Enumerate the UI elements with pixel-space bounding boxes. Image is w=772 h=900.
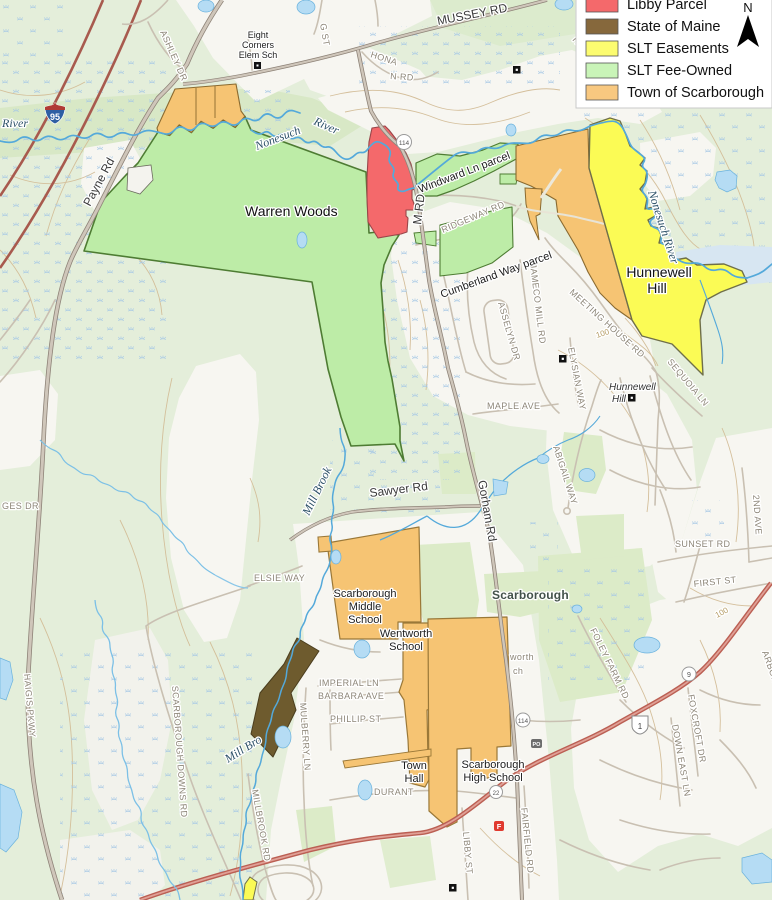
svg-text:River: River <box>1 116 28 130</box>
svg-text:Libby Parcel: Libby Parcel <box>627 0 707 13</box>
svg-text:Scarborough: Scarborough <box>492 588 569 602</box>
svg-text:Town: Town <box>401 760 427 772</box>
svg-text:9: 9 <box>687 672 691 679</box>
svg-text:MAPLE AVE: MAPLE AVE <box>487 401 540 411</box>
svg-text:Elem Sch: Elem Sch <box>239 50 278 60</box>
svg-text:Hall: Hall <box>405 773 424 785</box>
svg-text:Middle: Middle <box>349 601 381 613</box>
svg-text:IMPERIAL LN: IMPERIAL LN <box>319 678 379 688</box>
svg-text:Hunnewell: Hunnewell <box>626 264 691 280</box>
svg-text:Town of Scarborough: Town of Scarborough <box>627 85 764 101</box>
svg-text:Wentworth: Wentworth <box>380 628 432 640</box>
svg-text:Corners: Corners <box>242 40 275 50</box>
svg-text:95: 95 <box>50 112 60 122</box>
svg-text:114: 114 <box>399 140 410 147</box>
svg-text:ch: ch <box>513 666 523 676</box>
svg-text:High School: High School <box>463 772 522 784</box>
svg-text:Scarborough: Scarborough <box>462 759 525 771</box>
svg-text:Eight: Eight <box>248 30 269 40</box>
svg-text:School: School <box>348 614 382 626</box>
svg-text:BARBARA AVE: BARBARA AVE <box>318 691 384 701</box>
svg-text:1: 1 <box>638 722 643 731</box>
svg-text:SUNSET RD: SUNSET RD <box>675 539 731 549</box>
svg-text:SLT Fee-Owned: SLT Fee-Owned <box>627 63 732 79</box>
svg-text:Hill: Hill <box>612 394 627 405</box>
svg-text:PO: PO <box>533 742 542 748</box>
svg-text:114: 114 <box>518 718 529 725</box>
svg-text:Hunnewell: Hunnewell <box>609 382 656 393</box>
svg-text:Scarborough: Scarborough <box>334 588 397 600</box>
svg-text:N RD: N RD <box>390 71 414 83</box>
svg-text:F: F <box>497 822 502 831</box>
svg-text:22: 22 <box>493 791 500 797</box>
svg-text:Warren Woods: Warren Woods <box>245 203 338 219</box>
svg-text:PHILLIP ST: PHILLIP ST <box>330 714 381 724</box>
svg-text:worth: worth <box>509 652 534 662</box>
svg-text:Hill: Hill <box>647 280 666 296</box>
svg-text:GES DR: GES DR <box>2 501 39 511</box>
svg-text:DURANT: DURANT <box>374 787 414 797</box>
svg-text:State of Maine: State of Maine <box>627 19 721 35</box>
svg-text:N: N <box>743 0 752 15</box>
svg-text:ELSIE WAY: ELSIE WAY <box>254 573 305 583</box>
svg-text:School: School <box>389 641 423 653</box>
svg-text:SLT Easements: SLT Easements <box>627 41 729 57</box>
